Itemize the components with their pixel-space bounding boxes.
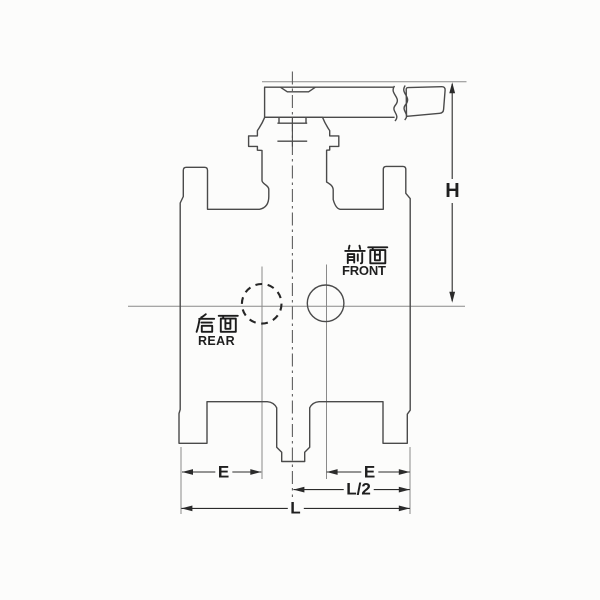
handle: [265, 86, 446, 122]
dim-label-e-left: E: [215, 463, 232, 480]
technical-drawing-page: 前面 后面 FRONT REAR H E E L/2 L: [0, 0, 600, 600]
extension-lines: [128, 82, 467, 514]
arrow-h-up: [449, 82, 455, 93]
front-label-latin: FRONT: [342, 264, 386, 277]
dim-label-h: H: [443, 179, 461, 203]
dimension-lines: [181, 84, 452, 508]
arrow-e-left-in: [250, 469, 261, 475]
handle-end-piece: [406, 87, 445, 117]
arrow-l-half-left: [293, 487, 304, 493]
rear-label-cjk-glyph-hou: [197, 314, 215, 332]
rear-label-cjk-glyph-mian: [219, 316, 238, 332]
dim-label-e-right: E: [361, 463, 378, 480]
valve-body-outline: [179, 117, 410, 461]
arrow-e-right-out: [399, 469, 410, 475]
dim-label-l: L: [287, 500, 303, 517]
break-line-left: [393, 86, 397, 121]
arrow-e-right-in: [327, 469, 338, 475]
handle-bar: [265, 87, 395, 117]
front-port-circle: [307, 285, 344, 322]
arrow-l-right: [399, 506, 410, 512]
dim-label-l-half: L/2: [343, 481, 374, 498]
arrow-e-left-out: [182, 469, 193, 475]
rear-label-latin: REAR: [198, 335, 235, 348]
arrow-l-left: [181, 506, 192, 512]
front-label-cjk-glyph-mian: [368, 247, 387, 263]
dimension-arrowheads: [181, 82, 455, 511]
stem: [277, 117, 307, 146]
arrow-l-half-right: [399, 487, 410, 493]
arrow-h-down: [449, 292, 455, 303]
front-label-cjk-glyph-qian: [345, 246, 365, 264]
